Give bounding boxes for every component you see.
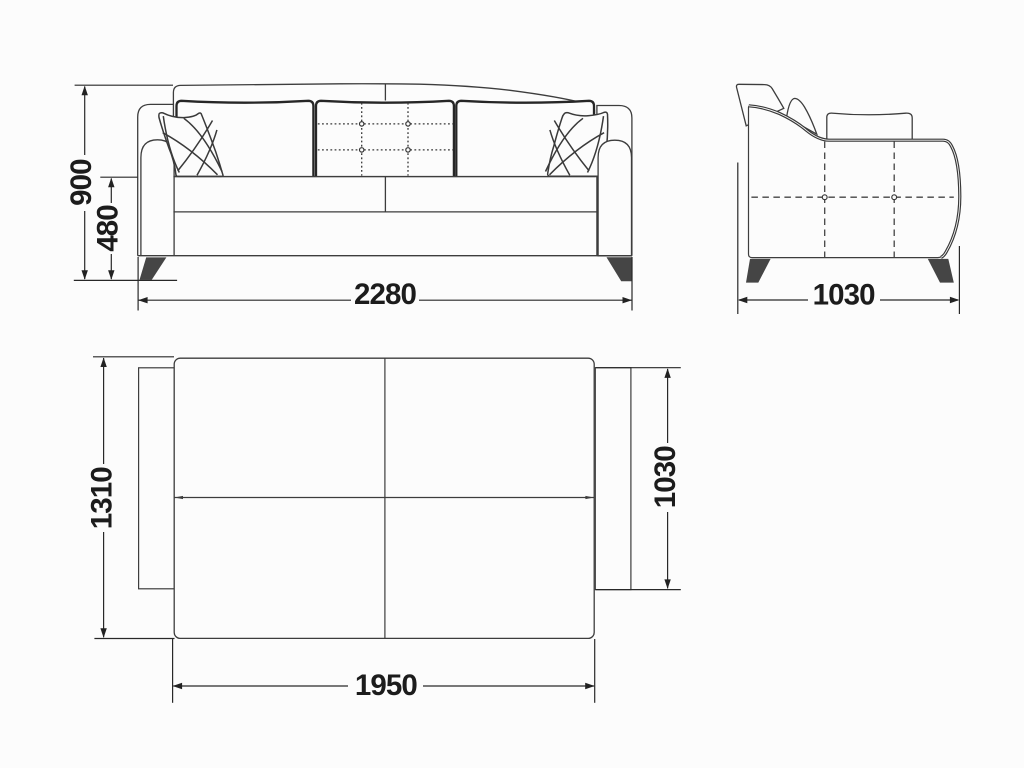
svg-text:480: 480: [92, 205, 125, 252]
svg-text:1030: 1030: [649, 446, 682, 509]
svg-text:1950: 1950: [355, 669, 418, 702]
svg-text:1310: 1310: [85, 467, 118, 530]
svg-text:900: 900: [65, 159, 98, 206]
svg-text:1030: 1030: [813, 279, 876, 312]
svg-text:2280: 2280: [354, 278, 417, 311]
